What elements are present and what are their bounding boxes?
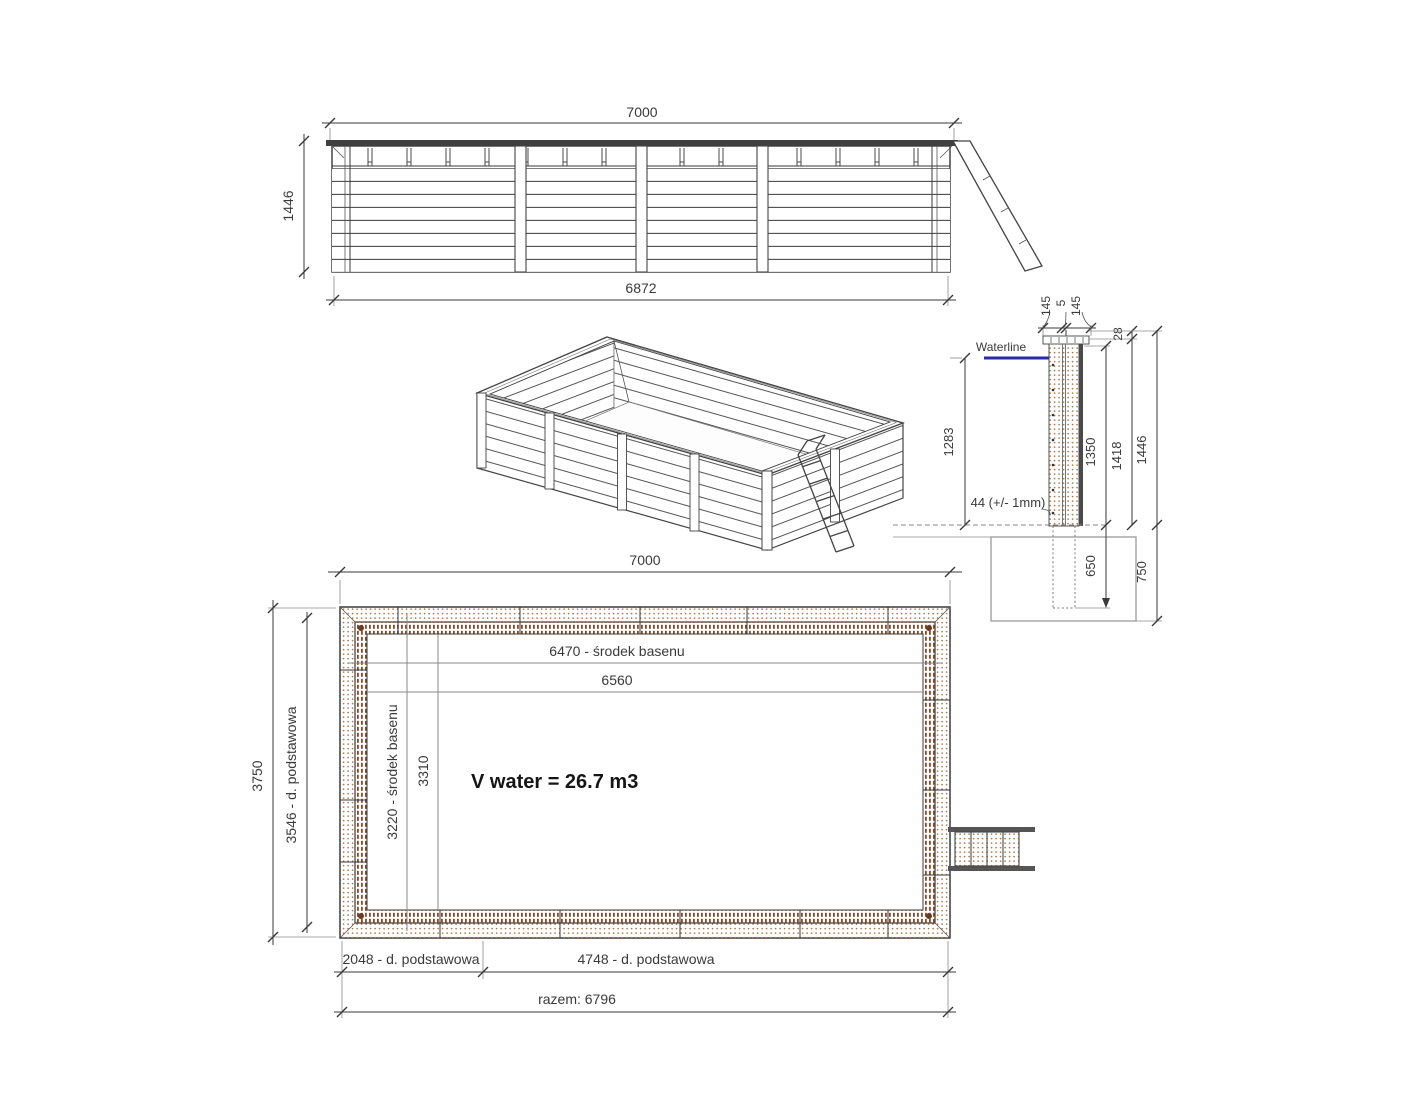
elevation-bottom-dim-label: 6872 <box>625 280 656 296</box>
plan-inner-width-label: 3310 <box>415 755 431 786</box>
plan-total-length-label: razem: 6796 <box>538 991 616 1007</box>
plan-center-length-label: 6470 - środek basenu <box>549 643 684 659</box>
elevation-post <box>757 146 768 272</box>
elevation-post <box>515 146 526 272</box>
plan-top-dim-label: 7000 <box>629 552 660 568</box>
elevation-top-dim-label: 7000 <box>626 104 657 120</box>
side-elevation-view: 7000 1446 6872 <box>280 104 1042 306</box>
elevation-ladder <box>953 141 1042 271</box>
section-cap <box>1043 336 1089 344</box>
section-waterline-label: Waterline <box>976 340 1027 354</box>
plan-base-right-label: 4748 - d. podstawowa <box>578 951 715 967</box>
section-wall-inner-height-label: 1350 <box>1083 438 1098 467</box>
plan-center-width-label: 3220 - środek basenu <box>384 704 400 839</box>
plan-ladder <box>948 827 1035 871</box>
section-wall-mid-height-label: 1418 <box>1109 442 1124 471</box>
section-cap-height-label: 28 <box>1111 327 1125 341</box>
plan-outer-width-label: 3750 <box>249 760 265 791</box>
plan-base-width-label: 3546 - d. podstawowa <box>283 706 299 843</box>
section-wall <box>1049 344 1079 526</box>
section-board-inner-label: 145 <box>1069 296 1083 316</box>
elevation-height-dim-label: 1446 <box>280 190 296 221</box>
section-post-embed-label: 650 <box>1083 555 1098 577</box>
section-liner <box>1079 344 1083 526</box>
plan-inner-length-label: 6560 <box>601 672 632 688</box>
section-waterline-height-label: 1283 <box>941 428 956 457</box>
isometric-view <box>477 337 903 552</box>
section-wall-total-height-label: 1446 <box>1134 436 1149 465</box>
section-board-thickness-note: 44 (+/- 1mm) <box>971 495 1046 510</box>
plan-water-area <box>367 634 923 910</box>
elevation-post <box>636 146 647 272</box>
plan-volume-note: V water = 26.7 m3 <box>471 771 638 793</box>
elevation-cap-rail <box>326 140 958 146</box>
wall-section-detail: 145 5 145 Waterline 1283 1350 1418 28 14… <box>893 296 1162 626</box>
pool-technical-drawing-sheet: 7000 1446 6872 <box>0 0 1422 1100</box>
section-board-gap-label: 5 <box>1054 299 1068 306</box>
drawing-canvas: 7000 1446 6872 <box>0 0 1422 1100</box>
plan-view: 7000 6470 - środek basenu 6560 3220 - śr… <box>249 552 1035 1018</box>
section-board-outer-label: 145 <box>1039 296 1053 316</box>
plan-base-left-label: 2048 - d. podstawowa <box>343 951 480 967</box>
section-foundation-depth-label: 750 <box>1134 561 1149 583</box>
